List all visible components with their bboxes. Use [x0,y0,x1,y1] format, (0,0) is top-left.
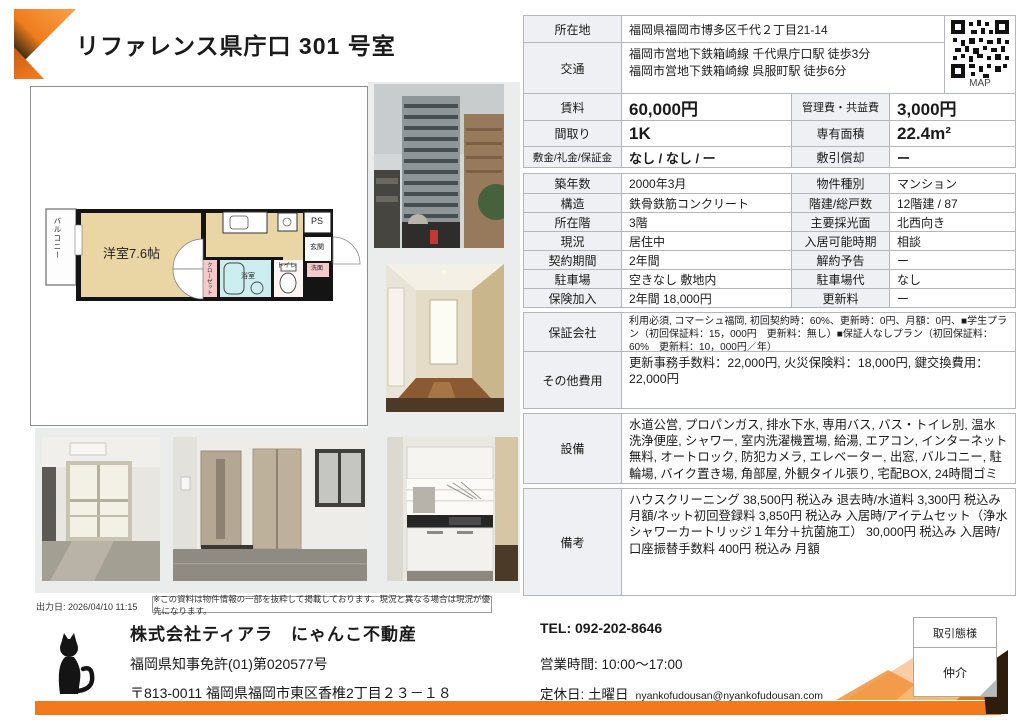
deal-type-text: 仲介 [943,664,967,681]
map-label: MAP [969,78,991,89]
row-value: マンション [889,174,1015,193]
floorplan-toilet-label: トイレ [277,263,297,270]
row-value: 3階 [621,213,791,231]
table-row: 保険加入 2年間 18,000円 更新料 ー [524,288,1015,307]
row-value: 1K [621,121,791,146]
row-value: 水道公営, プロパンガス, 排水下水, 専用バス, バス・トイレ別, 温水洗浄便… [621,414,1015,483]
building-exterior-photo [374,84,504,248]
table-row: 間取り 1K 専有面積 22.4m² [524,120,1015,146]
table-block-notes: 備考 ハウスクリーニング 38,500円 税込み 退去時/水道料 3,300円 … [523,488,1016,596]
table-row: 設備 水道公営, プロパンガス, 排水下水, 専用バス, バス・トイレ別, 温水… [524,414,1015,483]
table-row: 現況 居住中 入居可能時期 相談 [524,231,1015,250]
row-label: 階建/総戸数 [791,194,889,212]
row-label: 駐車場 [524,270,621,288]
row-label: 物件種別 [791,174,889,193]
property-info-table: 所在地 福岡県福岡市博多区千代２丁目21-14 交通 福岡市営地下鉄箱崎線 千代… [523,15,1016,596]
row-label: 専有面積 [791,121,889,146]
row-label: 敷金/礼金/保証金 [524,147,621,167]
row-label: 現況 [524,232,621,250]
company-address: 〒813-0011 福岡県福岡市東区香椎2丁目２３－１８ [130,683,452,703]
row-value: 福岡市営地下鉄箱崎線 千代県庁口駅 徒歩3分 福岡市営地下鉄箱崎線 呉服町駅 徒… [621,43,944,93]
room-doors-photo [173,437,367,581]
kitchen-photo [387,437,518,581]
deal-type-box: 取引態様 仲介 [913,617,997,697]
deal-type-value: 仲介 [914,648,996,696]
row-value: 2年間 [621,251,791,269]
map-qr-cell: MAP [944,16,1015,93]
row-label: 主要採光面 [791,213,889,231]
floorplan-box: バルコニー 洋室7.6帖 クローゼット 浴室 トイレ 洗面 玄関 PS [30,86,368,426]
table-row: 駐車場 空きなし 敷地内 駐車場代 なし [524,269,1015,288]
row-label: 更新料 [791,289,889,307]
row-label: 所在階 [524,213,621,231]
room-window-photo [42,437,160,581]
row-value: なし / なし / ー [621,147,791,167]
row-label: 所在地 [524,16,621,42]
closed-day-line: 定休日: 土曜日 nyankofudousan@nyankofudousan.c… [540,683,823,703]
business-hours: 営業時間: 10:00～17:00 [540,653,683,673]
row-label: 敷引償却 [791,147,889,167]
table-row: 賃料 60,000円 管理費・共益費 3,000円 [524,93,1015,120]
row-value: 空きなし 敷地内 [621,270,791,288]
floorplan-closet-label: クローゼット [205,262,211,295]
company-license: 福岡県知事免許(01)第020577号 [130,654,328,674]
company-name: 株式会社ティアラ にゃんこ不動産 [130,620,417,645]
row-value: 福岡県福岡市博多区千代２丁目21-14 [621,16,944,42]
row-label: 設備 [524,414,621,483]
table-block-top: 所在地 福岡県福岡市博多区千代２丁目21-14 交通 福岡市営地下鉄箱崎線 千代… [523,15,1016,168]
table-row: 保証会社 利用必須, コマーシュ福岡, 初回契約時：60%、更新時：0円、月額：… [524,313,1015,351]
row-label: 賃料 [524,94,621,120]
table-row: その他費用 更新事務手数料：22,000円, 火災保険料：18,000円, 鍵交… [524,351,1015,408]
row-value: 利用必須, コマーシュ福岡, 初回契約時：60%、更新時：0円、月額：0円、■学… [621,313,1015,351]
page-title: リファレンス県庁口 301 号室 [76,27,396,61]
table-row: 契約期間 2年間 解約予告 ー [524,250,1015,269]
output-date: 出力日: 2026/04/10 11:15 [36,600,137,613]
table-row: 敷金/礼金/保証金 なし / なし / ー 敷引償却 ー [524,146,1015,167]
row-label: その他費用 [524,352,621,408]
row-value: なし [889,270,1015,288]
closed-day: 定休日: 土曜日 [540,683,629,703]
map-qr-code [951,20,1009,78]
row-value: 2000年3月 [621,174,791,193]
table-block-details: 築年数 2000年3月 物件種別 マンション 構造 鉄骨鉄筋コンクリート 階建/… [523,173,1016,308]
table-row: 所在地 福岡県福岡市博多区千代２丁目21-14 [524,16,944,42]
row-label: 解約予告 [791,251,889,269]
hallway-photo [386,264,504,412]
row-value: 更新事務手数料：22,000円, 火災保険料：18,000円, 鍵交換費用：22… [621,352,1015,408]
row-value: 12階建 / 87 [889,194,1015,212]
row-label: 管理費・共益費 [791,94,889,120]
row-value: ー [889,147,1015,167]
row-label: 保証会社 [524,313,621,351]
deal-type-label: 取引態様 [914,618,996,648]
table-row: 備考 ハウスクリーニング 38,500円 税込み 退去時/水道料 3,300円 … [524,489,1015,595]
row-value: 3,000円 [889,94,1015,120]
floorplan-drawing [31,87,367,425]
row-value: 北西向き [889,213,1015,231]
row-label: 駐車場代 [791,270,889,288]
disclaimer-box: ※この資料は物件情報の一部を抜粋して掲載しております。現況と異なる場合は現況が優… [152,596,492,613]
row-value: ー [889,289,1015,307]
property-flyer: リファレンス県庁口 301 号室 [0,0,1024,724]
table-block-fees: 保証会社 利用必須, コマーシュ福岡, 初回契約時：60%、更新時：0円、月額：… [523,312,1016,409]
deal-box-corner-decoration [980,680,996,696]
floorplan-washroom-label: 洗面 [311,266,323,272]
table-row: 構造 鉄骨鉄筋コンクリート 階建/総戸数 12階建 / 87 [524,193,1015,212]
row-label: 構造 [524,194,621,212]
row-label: 備考 [524,489,621,595]
table-block-equipment: 設備 水道公営, プロパンガス, 排水下水, 専用バス, バス・トイレ別, 温水… [523,413,1016,484]
row-label: 間取り [524,121,621,146]
row-value: 鉄骨鉄筋コンクリート [621,194,791,212]
row-label: 交通 [524,43,621,93]
floorplan-entrance-label: 玄関 [310,244,324,251]
table-row: 所在階 3階 主要採光面 北西向き [524,212,1015,231]
row-value: 22.4m² [889,121,1015,146]
floorplan-main-room-label: 洋室7.6帖 [103,247,160,261]
cat-logo-icon [48,632,100,696]
row-label: 築年数 [524,174,621,193]
row-label: 契約期間 [524,251,621,269]
floorplan-balcony-label: バルコニー [53,217,61,260]
row-value: 2年間 18,000円 [621,289,791,307]
row-label: 入居可能時期 [791,232,889,250]
row-value: 相談 [889,232,1015,250]
floorplan-bath-label: 浴室 [241,273,255,280]
floorplan-ps-label: PS [311,217,323,226]
table-row: 交通 福岡市営地下鉄箱崎線 千代県庁口駅 徒歩3分 福岡市営地下鉄箱崎線 呉服町… [524,42,944,93]
table-row: 築年数 2000年3月 物件種別 マンション [524,174,1015,193]
row-value: 居住中 [621,232,791,250]
row-value: 60,000円 [621,94,791,120]
row-value: ハウスクリーニング 38,500円 税込み 退去時/水道料 3,300円 税込み… [621,489,1015,595]
row-label: 保険加入 [524,289,621,307]
phone-number: TEL: 092-202-8646 [540,620,662,636]
row-value: ー [889,251,1015,269]
